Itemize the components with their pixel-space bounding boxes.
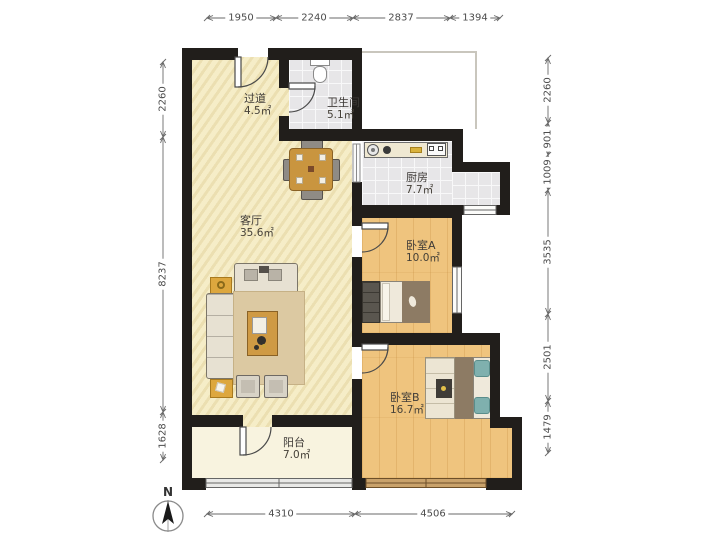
room-label-kitchen: 厨房 7.7㎡: [366, 171, 446, 184]
wall-bath-divider-upper: [279, 48, 289, 88]
wall-right-above-window: [452, 205, 462, 267]
wall-kitchen-bottom: [352, 205, 462, 218]
room-name: 过道: [244, 92, 266, 105]
dim-top-3: 2837: [385, 13, 416, 24]
washer-drum-icon: [371, 148, 375, 152]
loveseat-cushion: [268, 269, 282, 281]
coffee-table-gold-dot: [262, 344, 266, 348]
table-centerpiece: [308, 166, 314, 172]
north-compass-icon: [153, 500, 183, 532]
dim-left-3: 1628: [158, 420, 169, 451]
dim-right-2: 901: [543, 126, 554, 151]
dim-top-1: 1950: [225, 13, 256, 24]
room-name: 厨房: [406, 171, 428, 184]
dim-right-1: 2260: [543, 74, 554, 105]
wall-left: [182, 48, 192, 490]
room-label-hallway: 过道 4.5㎡: [204, 92, 284, 105]
room-area: 7.7㎡: [406, 184, 433, 197]
room-area: 5.1㎡: [327, 109, 354, 122]
kitchen-window: [464, 206, 496, 215]
floor-kitchen-ext: [452, 172, 500, 205]
dim-bottom-1: 4310: [265, 509, 296, 520]
wall-ext-bottom-stub: [496, 205, 510, 215]
dim-top-4: 1394: [459, 13, 490, 24]
room-name: 卫生间: [327, 96, 360, 109]
wall-bottom-stub-right: [486, 478, 522, 490]
room-area: 4.5㎡: [244, 105, 271, 118]
north-label: N: [163, 485, 173, 499]
nightstand-lamp-icon: [441, 386, 446, 391]
dim-right-6: 1479: [543, 411, 554, 442]
plate: [319, 177, 326, 184]
bedroom-b-window: [366, 479, 486, 488]
wall-center-mid1: [352, 182, 362, 226]
bed-a-pillow: [382, 283, 390, 321]
room-area: 10.0㎡: [406, 252, 440, 265]
kitchen-sliding-door: [353, 144, 360, 182]
dimension-lines-bottom: [204, 511, 515, 517]
shaft-outline: [362, 51, 477, 129]
burner-icon: [438, 146, 443, 151]
room-label-bedroom-a: 卧室A 10.0㎡: [366, 239, 446, 252]
wardrobe-a: [362, 281, 380, 323]
balcony-window: [206, 479, 352, 488]
room-label-living: 客厅 35.6㎡: [200, 214, 280, 227]
dim-right-5: 2501: [543, 341, 554, 372]
room-label-bedroom-b: 卧室B 16.7㎡: [350, 391, 430, 404]
coffee-table-book: [252, 317, 267, 334]
cutting-board-icon: [410, 147, 422, 153]
room-area: 7.0㎡: [283, 449, 310, 462]
wall-center-upper: [352, 48, 362, 141]
coffee-table-bowl-small: [254, 345, 259, 350]
room-area: 35.6㎡: [240, 227, 274, 240]
room-name: 卧室B: [390, 391, 420, 404]
bed-b-pillow: [474, 360, 490, 377]
dim-top-2: 2240: [298, 13, 329, 24]
sink-icon: [383, 146, 391, 154]
side-table-ring: [217, 281, 225, 289]
burner-icon: [429, 146, 434, 151]
plate: [296, 154, 303, 161]
wall-bedroom-divider: [352, 333, 500, 345]
ottoman: [236, 375, 260, 398]
room-area: 16.7㎡: [390, 404, 424, 417]
wall-balcony-divider-left: [192, 415, 243, 427]
floor-plan: 过道 4.5㎡ 卫生间 5.1㎡ 厨房 7.7㎡ 客厅 35.6㎡ 卧室A 10…: [0, 0, 720, 540]
bedroom-a-window: [453, 267, 462, 313]
room-label-balcony: 阳台 7.0㎡: [243, 436, 323, 449]
room-name: 阳台: [283, 436, 305, 449]
dim-left-1: 2260: [158, 83, 169, 114]
dim-bottom-2: 4506: [417, 509, 448, 520]
dim-left-2: 8237: [158, 258, 169, 289]
room-name: 客厅: [240, 214, 262, 227]
loveseat-tray: [259, 266, 269, 273]
toilet-bowl-icon: [313, 66, 327, 83]
wall-balcony-divider-right: [272, 415, 362, 427]
bed-b-duvet: [455, 357, 473, 419]
wall-bedroom-b-right: [490, 333, 500, 422]
wall-balcony-corner: [182, 478, 206, 490]
floor-bedroom-b-step: [490, 428, 512, 478]
wall-bath-kitchen-band: [279, 129, 463, 141]
dim-right-3: 1009: [543, 156, 554, 187]
room-label-bathroom: 卫生间 5.1㎡: [287, 96, 367, 109]
plate: [319, 154, 326, 161]
bed-b-pillow: [474, 397, 490, 414]
wall-bottom-stub-left: [352, 478, 366, 490]
wall-right-below-window: [452, 313, 462, 335]
ottoman: [264, 375, 288, 398]
floor-balcony: [192, 427, 352, 478]
loveseat-cushion: [244, 269, 258, 281]
room-name: 卧室A: [406, 239, 436, 252]
dim-right-4: 3535: [543, 236, 554, 267]
plate: [296, 177, 303, 184]
